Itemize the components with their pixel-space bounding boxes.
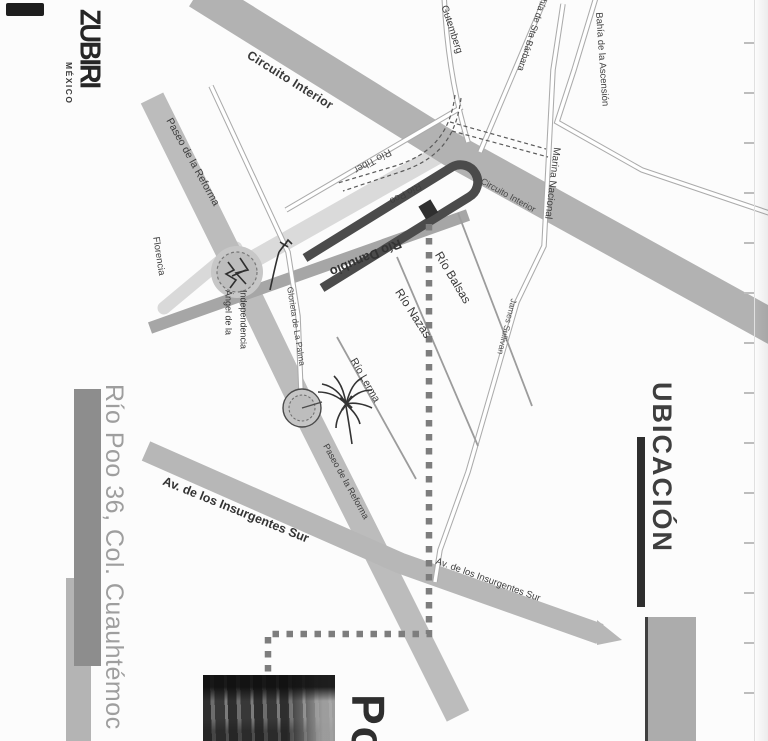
tick-mark [744, 542, 754, 544]
la-palma-glorieta [283, 389, 322, 427]
tick-mark [744, 592, 754, 594]
label-angel-independencia: Ángel de la Independencia [220, 290, 251, 349]
section-title-underline [637, 437, 645, 607]
road-insurgentes [146, 451, 600, 634]
section-title-ubicacion: UBICACIÓN [646, 382, 677, 553]
tick-mark [744, 192, 754, 194]
tick-mark [744, 292, 754, 294]
tick-mark [744, 242, 754, 244]
scanned-brochure-page: Circuito Interior Circuito Interior Pase… [0, 0, 768, 741]
zubiri-logo: ZUBIRI [73, 9, 106, 87]
tick-mark [744, 392, 754, 394]
tick-mark [744, 142, 754, 144]
property-photo [203, 675, 335, 741]
address-title: Río Poo 36, Col. Cuauhtémoc [99, 384, 128, 730]
tick-mark [744, 92, 754, 94]
zubiri-logo-country: MÉXICO [64, 62, 74, 105]
tick-mark [744, 642, 754, 644]
page-edge-shadow [754, 0, 768, 741]
sidebar-accent-bar-dark [74, 389, 101, 666]
tick-mark [744, 42, 754, 44]
photo-caption-clipped: Po [341, 694, 395, 741]
tick-mark [744, 492, 754, 494]
label-angel-line2: Independencia [239, 290, 249, 349]
tick-mark [744, 692, 754, 694]
label-angel-line1: Ángel de la [223, 290, 233, 335]
road-insurgentes-tip [597, 620, 622, 645]
scan-corner-mark [6, 3, 44, 16]
bottom-right-accent-bar [645, 617, 696, 741]
tick-mark [744, 442, 754, 444]
tick-mark [744, 342, 754, 344]
